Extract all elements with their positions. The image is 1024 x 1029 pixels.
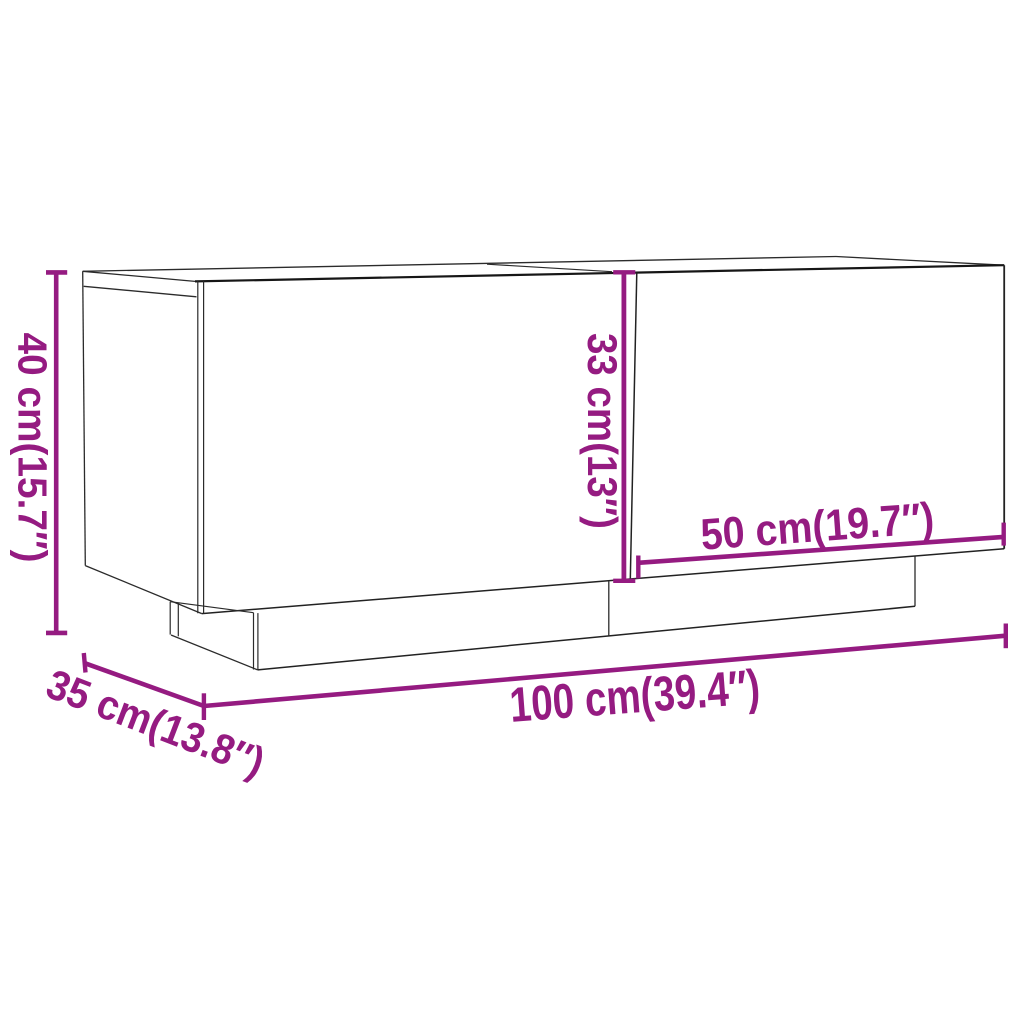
svg-text:33 cm(13″): 33 cm(13″) — [579, 333, 626, 529]
svg-text:40 cm(15.7″): 40 cm(15.7″) — [10, 333, 56, 563]
